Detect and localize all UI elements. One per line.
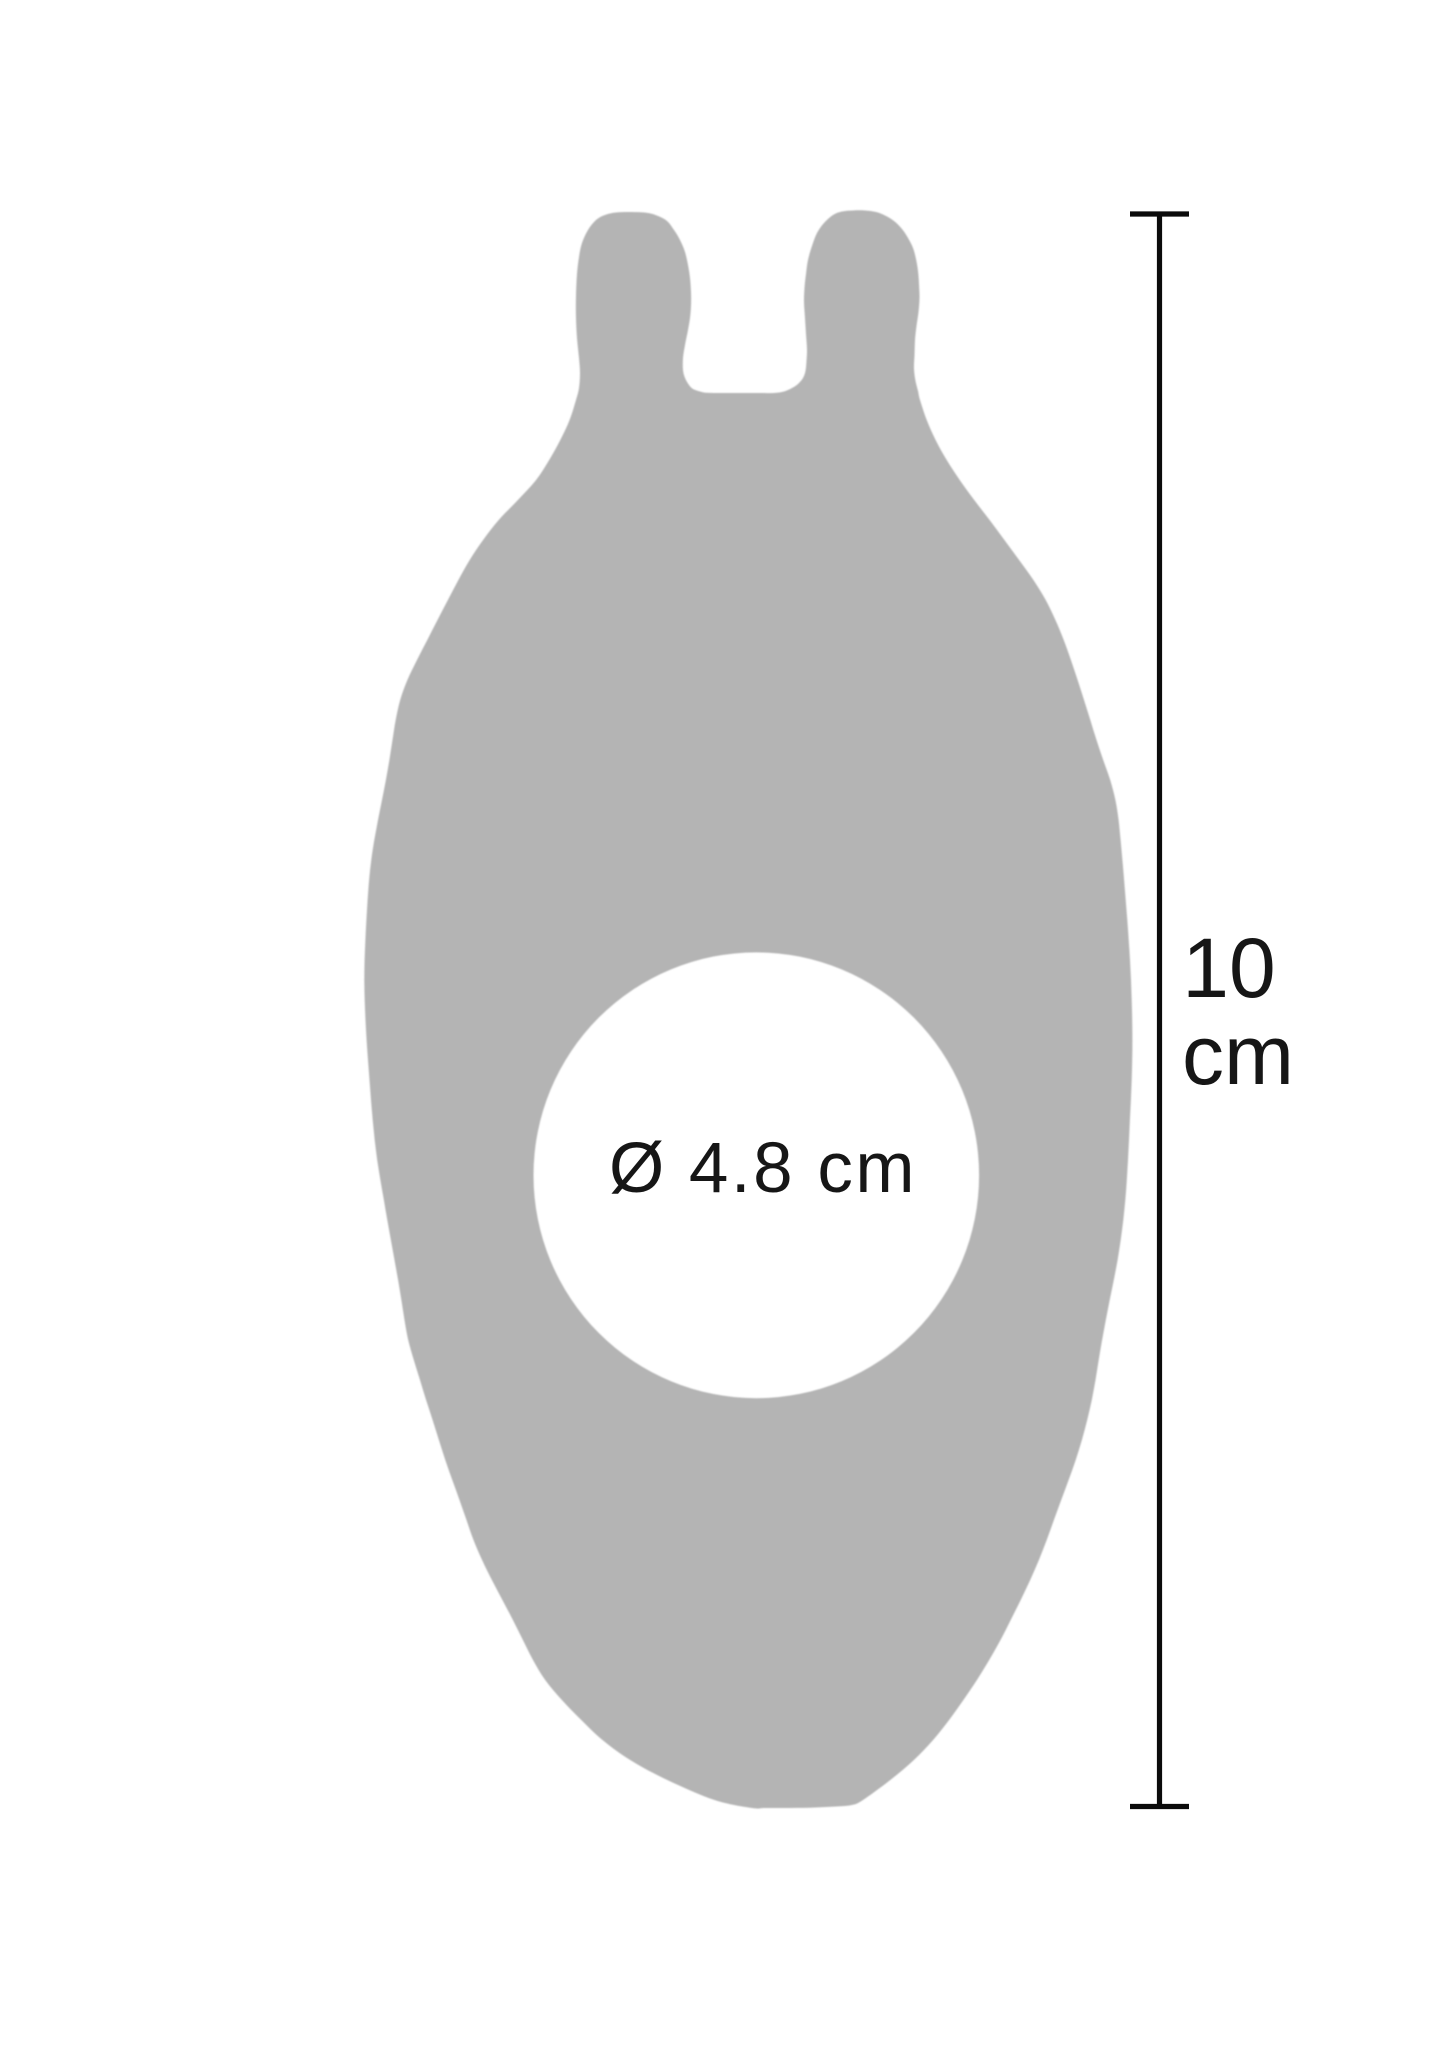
svg-text:10: 10 [1182,921,1275,1015]
svg-text:Ø 4.8 cm: Ø 4.8 cm [609,1129,917,1208]
svg-text:cm: cm [1182,1008,1294,1102]
